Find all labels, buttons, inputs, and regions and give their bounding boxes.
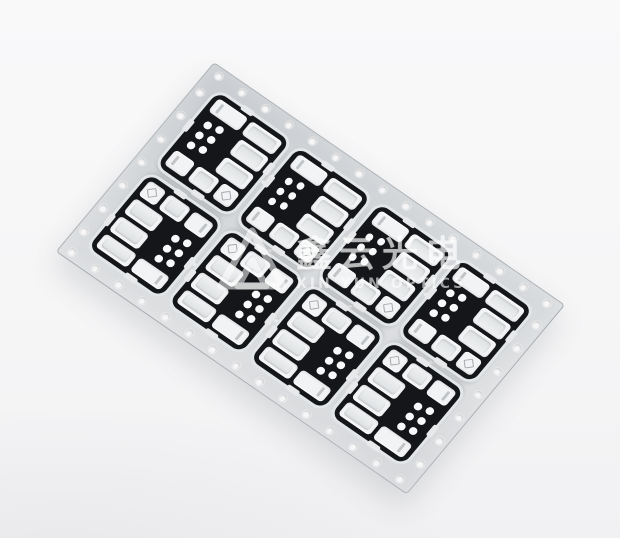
sprocket-hole xyxy=(284,120,295,130)
sprocket-hole xyxy=(434,436,445,446)
diamond-polarity-icon xyxy=(390,355,400,365)
diamond-polarity-icon xyxy=(147,188,157,198)
sprocket-hole xyxy=(114,280,125,290)
sprocket-hole xyxy=(67,247,78,257)
silkscreen-mark xyxy=(279,279,289,289)
sprocket-hole xyxy=(448,233,459,243)
sprocket-hole xyxy=(156,134,167,144)
sprocket-hole xyxy=(471,250,482,260)
sprocket-hole xyxy=(79,226,90,236)
sprocket-hole xyxy=(260,104,271,114)
sprocket-hole xyxy=(512,343,523,353)
silkscreen-mark xyxy=(457,271,467,281)
sprocket-hole xyxy=(348,442,359,452)
silkscreen-mark xyxy=(376,216,386,226)
sprocket-hole xyxy=(207,344,218,354)
sprocket-hole xyxy=(137,157,148,167)
sprocket-hole xyxy=(492,366,503,376)
led-lens xyxy=(406,366,429,386)
diamond-polarity-icon xyxy=(221,191,231,201)
sprocket-hole xyxy=(254,377,265,387)
silkscreen-mark xyxy=(154,274,164,284)
sprocket-hole xyxy=(90,263,101,273)
sprocket-hole xyxy=(395,474,406,484)
sprocket-hole xyxy=(331,152,342,162)
sprocket-hole xyxy=(518,282,529,292)
led-lens xyxy=(244,254,267,274)
silkscreen-mark xyxy=(441,390,451,400)
sprocket-hole xyxy=(301,409,312,419)
sprocket-hole xyxy=(98,203,109,213)
sprocket-hole xyxy=(495,266,506,276)
silkscreen-mark xyxy=(215,104,225,114)
diamond-polarity-icon xyxy=(228,244,238,254)
sprocket-hole xyxy=(175,111,186,121)
diamond-polarity-icon xyxy=(463,359,473,369)
silkscreen-mark xyxy=(170,155,180,165)
led-lens xyxy=(354,282,377,302)
silkscreen-mark xyxy=(251,211,261,221)
silkscreen-mark xyxy=(199,223,209,233)
pcb-panel xyxy=(56,62,566,494)
product-photo: 鑫云光电 XIN YUN OPTICS xyxy=(0,0,620,538)
silkscreen-mark xyxy=(316,386,326,396)
silkscreen-mark xyxy=(413,323,423,333)
diamond-polarity-icon xyxy=(302,247,312,257)
silkscreen-mark xyxy=(296,160,306,170)
diamond-polarity-icon xyxy=(383,303,393,313)
sprocket-hole xyxy=(473,390,484,400)
sprocket-hole xyxy=(454,413,465,423)
sprocket-hole xyxy=(278,393,289,403)
led-lens xyxy=(325,310,348,330)
sprocket-hole xyxy=(231,361,242,371)
led-lens xyxy=(192,170,215,190)
silkscreen-mark xyxy=(332,267,342,277)
sprocket-hole xyxy=(137,296,148,306)
led-lens xyxy=(434,338,457,358)
sprocket-hole xyxy=(542,298,553,308)
sprocket-hole xyxy=(354,169,365,179)
silkscreen-mark xyxy=(397,442,407,452)
sprocket-hole xyxy=(213,71,224,81)
sprocket-hole xyxy=(424,217,435,227)
sprocket-hole xyxy=(325,425,336,435)
led-lens xyxy=(273,226,296,246)
sprocket-hole xyxy=(371,458,382,468)
sprocket-hole xyxy=(401,201,412,211)
sprocket-hole xyxy=(237,88,248,98)
sprocket-hole xyxy=(378,185,389,195)
sprocket-hole xyxy=(415,459,426,469)
silkscreen-mark xyxy=(235,330,245,340)
silkscreen-mark xyxy=(360,335,370,345)
led-lens xyxy=(163,198,186,218)
sprocket-hole xyxy=(195,87,206,97)
sprocket-hole xyxy=(184,328,195,338)
sprocket-hole xyxy=(117,180,128,190)
diamond-polarity-icon xyxy=(309,299,319,309)
sprocket-hole xyxy=(531,320,542,330)
sprocket-hole xyxy=(160,312,171,322)
sprocket-hole xyxy=(307,136,318,146)
